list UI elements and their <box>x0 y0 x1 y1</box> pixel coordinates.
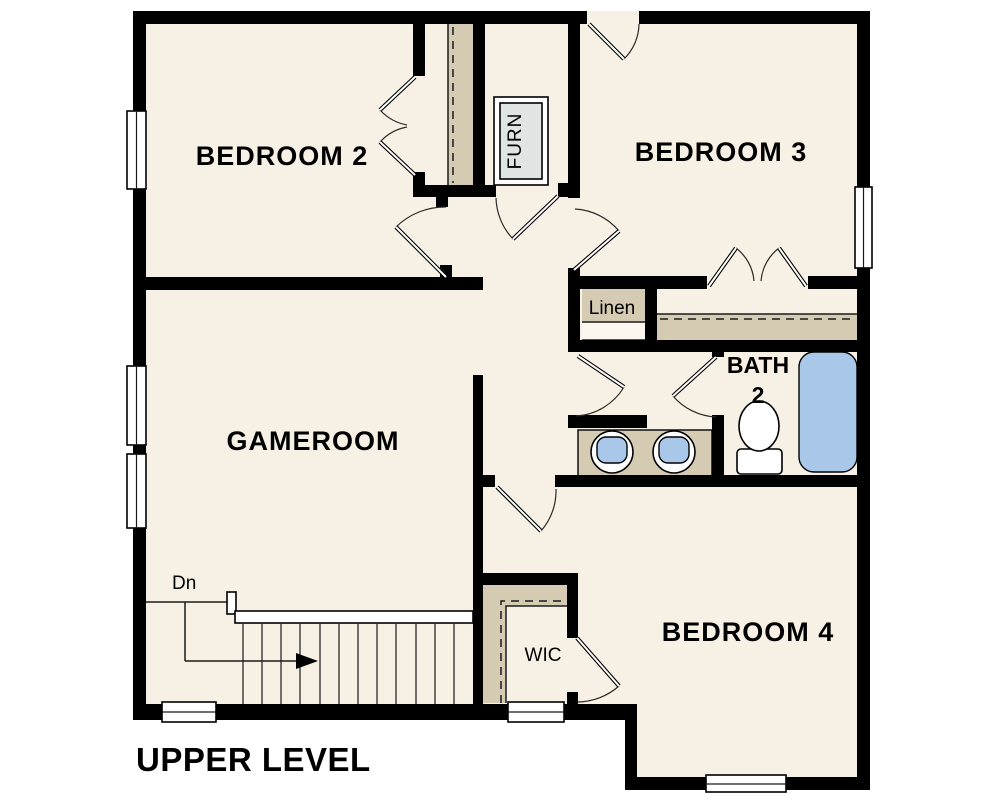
wall-segment <box>473 24 485 197</box>
bedroom3-label: BEDROOM 3 <box>635 137 808 167</box>
wall-segment <box>857 11 870 790</box>
linen-label: Linen <box>589 298 636 319</box>
stair-rail <box>235 611 473 623</box>
bathtub <box>799 352 857 472</box>
bedroom2-label: BEDROOM 2 <box>196 141 369 171</box>
bath-label-line1: BATH <box>727 352 789 378</box>
sink-right <box>653 431 695 473</box>
wall-segment <box>567 585 578 638</box>
bedroom4-label: BEDROOM 4 <box>662 617 835 647</box>
wall-segment <box>473 375 483 710</box>
wall-segment <box>568 415 647 428</box>
wall-segment <box>413 24 425 76</box>
door-jamb <box>712 345 724 357</box>
stairs-down-label: Dn <box>172 573 196 594</box>
window-gameroom-left-upper <box>127 366 146 445</box>
wall-segment <box>639 11 870 24</box>
window-bedroom3-right <box>855 187 872 268</box>
window-bedroom2-left <box>127 111 146 189</box>
gameroom-label: GAMEROOM <box>227 426 400 456</box>
bath-label-line2: 2 <box>752 382 765 408</box>
floorplan-upper-level: BEDROOM 2 BEDROOM 3 GAMEROOM BEDROOM 4 B… <box>0 0 1000 800</box>
floorplan-canvas: BEDROOM 2 BEDROOM 3 GAMEROOM BEDROOM 4 B… <box>0 0 1000 800</box>
wall-segment <box>568 22 580 198</box>
wall-segment <box>580 276 707 289</box>
sink-left <box>591 431 633 473</box>
wall-segment <box>413 185 496 197</box>
wall-segment <box>555 475 870 487</box>
bedroom3-closet-shelf <box>657 314 857 340</box>
toilet <box>737 401 782 474</box>
wall-segment <box>568 268 580 352</box>
window-wic-bottom <box>508 702 564 722</box>
wall-segment <box>133 11 587 24</box>
linen-shelf <box>582 322 645 340</box>
page-title: UPPER LEVEL <box>136 741 371 778</box>
wall-segment <box>808 276 870 289</box>
door-jamb <box>436 195 448 207</box>
door-jamb <box>567 692 578 704</box>
bedroom2-closet-shelf <box>448 24 473 185</box>
door-jamb <box>483 475 495 487</box>
window-stairs-bottom <box>162 702 216 722</box>
wall-segment <box>473 573 578 585</box>
furnace-label: FURN <box>505 113 526 170</box>
wall-segment <box>133 277 483 290</box>
window-bedroom4-bottom <box>706 775 786 792</box>
wic-label: WIC <box>525 645 562 666</box>
window-gameroom-left-lower <box>127 454 146 528</box>
